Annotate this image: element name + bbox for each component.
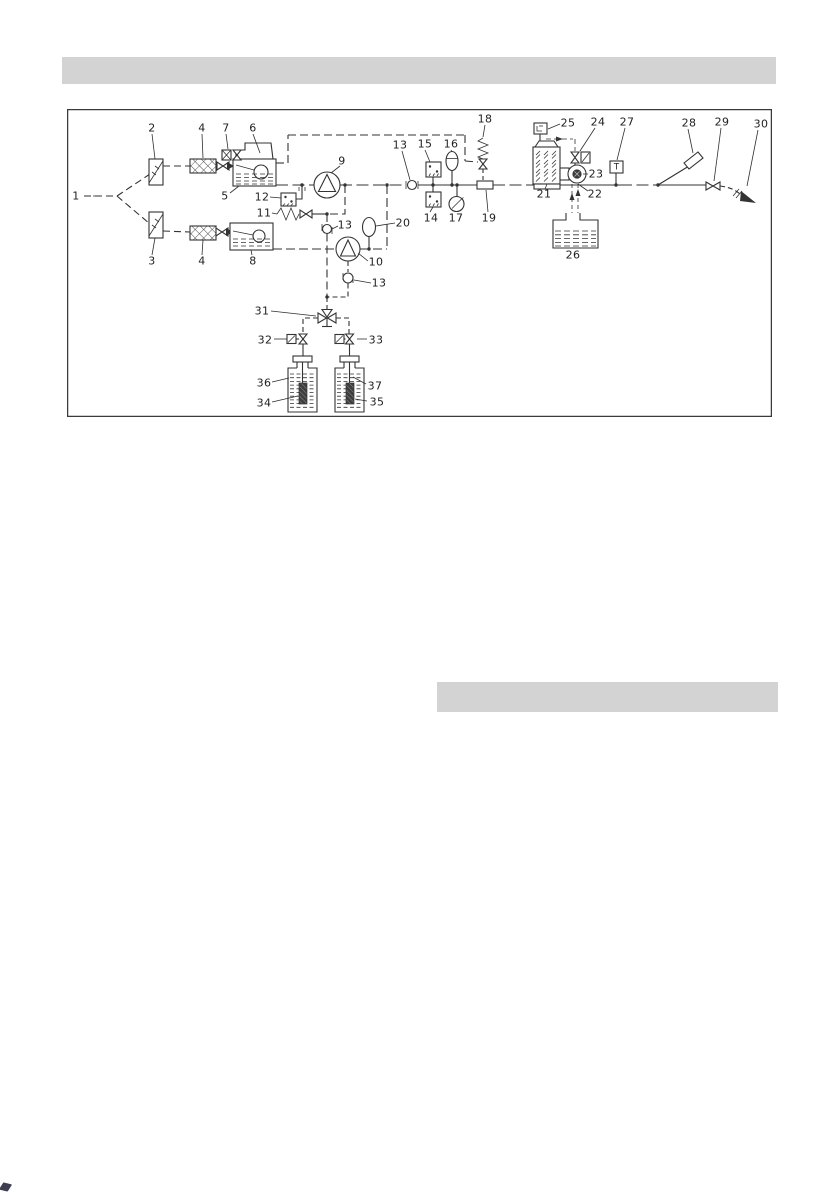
component-label-36: 36	[257, 377, 272, 390]
component-label-8: 8	[249, 255, 256, 268]
component-label-1: 1	[72, 190, 79, 203]
component-label-2: 2	[148, 122, 155, 135]
separator-3	[149, 212, 163, 238]
component-label-37: 37	[368, 380, 383, 393]
outlet-30	[720, 186, 756, 203]
check-valve-13-main	[406, 181, 418, 190]
component-label-20: 20	[396, 217, 411, 230]
component-label-16: 16	[444, 138, 459, 151]
component-label-25: 25	[561, 117, 576, 130]
restrictor-19	[477, 181, 493, 189]
tank-8	[230, 223, 273, 250]
component-label-7: 7	[222, 122, 229, 135]
component-label-T: T	[613, 163, 620, 173]
component-label-13: 13	[338, 219, 353, 232]
component-label-11: 11	[257, 207, 272, 220]
inlet-line-1	[84, 174, 150, 224]
component-label-35: 35	[370, 396, 385, 409]
component-label-13: 13	[372, 277, 387, 290]
tank-26	[553, 213, 598, 248]
component-label-26: 26	[566, 249, 581, 262]
accumulator-16	[446, 152, 458, 186]
separator-2	[149, 159, 163, 185]
pump-9	[314, 172, 340, 198]
pressure-switch-15	[426, 162, 441, 192]
component-label-4: 4	[198, 122, 205, 135]
component-label-4: 4	[198, 255, 205, 268]
component-label-17: 17	[449, 212, 464, 225]
suction-risers	[570, 184, 581, 213]
component-label-19: 19	[482, 212, 497, 225]
damper-20	[363, 218, 376, 250]
filter-4-lower	[163, 226, 216, 240]
component-labels: 1247634851211913151618141719132010132524…	[72, 113, 768, 410]
vent-valves-7	[222, 150, 241, 160]
component-label-23: 23	[589, 168, 604, 181]
pressure-gauge-17	[449, 185, 464, 212]
component-label-15: 15	[418, 138, 433, 151]
valve-32	[287, 334, 307, 356]
component-label-32: 32	[258, 334, 273, 347]
component-label-3: 3	[148, 255, 155, 268]
component-label-28: 28	[682, 117, 697, 130]
valve-29	[706, 182, 720, 190]
filter-4-upper	[163, 159, 216, 173]
component-label-12: 12	[255, 191, 270, 204]
component-label-30: 30	[754, 118, 769, 131]
bottle-right	[335, 356, 364, 412]
component-label-14: 14	[424, 212, 439, 225]
relief-valve-18	[478, 138, 488, 181]
component-label-29: 29	[715, 116, 730, 129]
component-label-10: 10	[369, 256, 384, 269]
component-label-27: 27	[620, 116, 635, 129]
component-label-31: 31	[255, 305, 270, 318]
valve-24	[571, 152, 590, 166]
check-valve-13-mid	[322, 214, 332, 299]
page-corner-mark	[0, 1182, 12, 1191]
diagram-border	[68, 110, 772, 417]
pump-22-23	[560, 165, 586, 183]
document-page: 1247634851211913151618141719132010132524…	[0, 0, 840, 1192]
component-label-6: 6	[249, 122, 256, 135]
control-box-25	[534, 123, 547, 141]
component-label-22: 22	[588, 188, 603, 201]
inlet-valve-upper	[217, 162, 234, 170]
component-label-13: 13	[393, 139, 408, 152]
component-label-24: 24	[591, 116, 606, 129]
mid-section-header-bar	[437, 682, 778, 712]
tool-28	[658, 152, 703, 185]
bottle-left	[288, 356, 317, 412]
top-section-header-bar	[62, 57, 776, 84]
schematic-diagram: 1247634851211913151618141719132010132524…	[67, 109, 772, 417]
component-label-9: 9	[338, 155, 345, 168]
heater-21	[533, 141, 560, 189]
component-label-34: 34	[257, 397, 272, 410]
valve-33	[335, 334, 354, 356]
component-label-21: 21	[537, 188, 552, 201]
component-label-5: 5	[221, 190, 228, 203]
component-label-33: 33	[369, 334, 384, 347]
component-label-18: 18	[478, 113, 493, 126]
pressure-switch-14	[426, 192, 441, 207]
